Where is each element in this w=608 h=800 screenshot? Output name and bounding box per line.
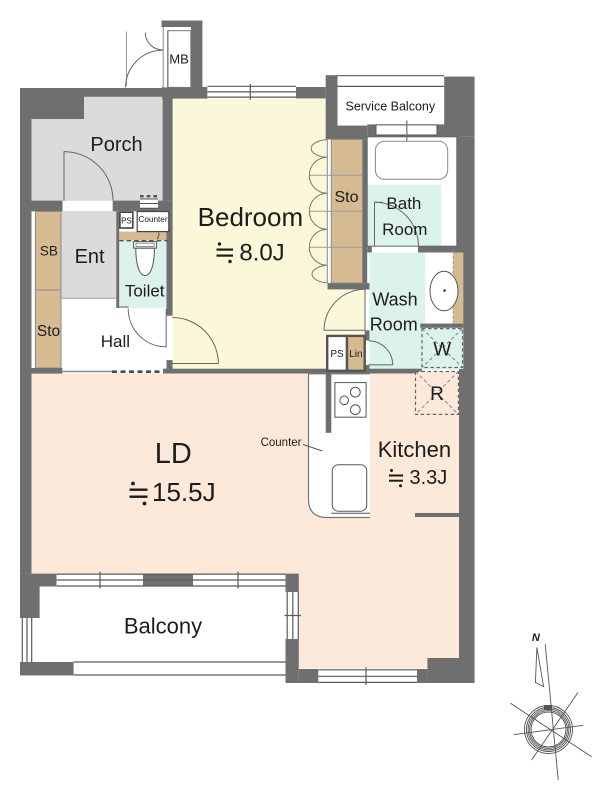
svg-text:Room: Room [370,315,418,335]
svg-text:Service Balcony: Service Balcony [345,100,435,114]
svg-text:PS: PS [330,349,344,360]
svg-text:Bath: Bath [386,194,421,213]
svg-text:Wash: Wash [372,290,417,310]
svg-text:MB: MB [169,52,189,67]
svg-text:W: W [433,339,451,360]
svg-text:Bedroom: Bedroom [198,202,304,232]
svg-text:Toilet: Toilet [125,282,165,301]
svg-text:LD: LD [155,438,192,470]
svg-text:PS: PS [121,217,132,226]
svg-text:Room: Room [382,220,427,239]
svg-text:Lin: Lin [349,349,362,360]
svg-text:Counter: Counter [138,215,167,224]
svg-text:Kitchen: Kitchen [378,437,451,462]
svg-text:Counter: Counter [261,437,302,449]
svg-text:SB: SB [40,244,58,259]
svg-text:8.0J: 8.0J [239,239,284,266]
svg-text:Sto: Sto [37,323,60,340]
svg-text:3.3J: 3.3J [410,467,448,489]
svg-text:Porch: Porch [90,134,142,156]
svg-text:R: R [430,384,444,405]
svg-text:Ent: Ent [75,246,105,268]
svg-text:N: N [532,632,541,644]
svg-text:Balcony: Balcony [124,614,202,639]
svg-text:15.5J: 15.5J [152,477,216,507]
svg-text:Hall: Hall [101,332,130,351]
svg-text:Sto: Sto [334,189,358,206]
